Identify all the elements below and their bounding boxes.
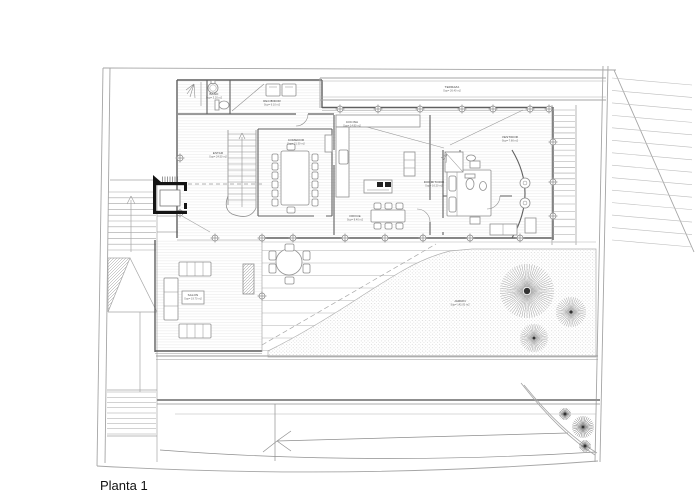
label-vestidor: VESTIDOR <box>502 135 519 139</box>
svg-text:Sup= 3.20 m2: Sup= 3.20 m2 <box>206 96 223 100</box>
right-exterior-stairs <box>552 105 576 245</box>
svg-text:Sup= 8.40 m2: Sup= 8.40 m2 <box>347 218 364 222</box>
hillside-hatch <box>612 78 692 247</box>
svg-text:Sup= 24.50 m2: Sup= 24.50 m2 <box>209 155 227 159</box>
label-jardin: JARDIN <box>454 299 465 303</box>
label-comedor: COMEDOR <box>288 138 305 142</box>
tree-corner-1 <box>559 408 571 420</box>
label-office: OFFICE <box>349 214 361 218</box>
label-bano: BAÑO <box>210 91 219 96</box>
label-terraza: TERRAZA <box>445 85 460 89</box>
svg-text:Sup= 19.70 m2: Sup= 19.70 m2 <box>184 297 202 301</box>
svg-text:Sup= 7.60 m2: Sup= 7.60 m2 <box>502 139 519 143</box>
label-estar: ESTAR <box>213 151 224 155</box>
floor-plan-drawing: BAÑO Sup= 3.20 m2 RECIBIDOR Sup= 6.10 m2… <box>0 0 700 500</box>
label-dormitorio: DORMITORIO <box>424 180 445 184</box>
svg-text:Sup= 16.20 m2: Sup= 16.20 m2 <box>425 184 443 188</box>
rear-terrace-strip <box>320 78 606 108</box>
label-cocina: COCINA <box>346 120 358 124</box>
right-stairs-treads-b <box>553 204 575 242</box>
label-salon: SALON <box>188 293 199 297</box>
label-recibidor: RECIBIDOR <box>263 99 281 103</box>
svg-text:Sup= 142.00 m2: Sup= 142.00 m2 <box>450 303 470 307</box>
left-stairs-treads-upper <box>108 192 156 250</box>
svg-text:Sup= 14.80 m2: Sup= 14.80 m2 <box>343 124 361 128</box>
svg-text:Sup= 6.10 m2: Sup= 6.10 m2 <box>264 103 281 107</box>
tree-corner-2 <box>572 416 594 438</box>
svg-text:Sup= 21.30 m2: Sup= 21.30 m2 <box>287 142 305 146</box>
svg-text:Sup= 26.40 m2: Sup= 26.40 m2 <box>443 89 461 93</box>
tree-large <box>500 264 554 318</box>
right-stairs-treads-a <box>553 110 575 196</box>
left-stairs-treads-lower <box>107 392 156 434</box>
tree-small <box>520 324 548 352</box>
floor-plan-canvas: BAÑO Sup= 3.20 m2 RECIBIDOR Sup= 6.10 m2… <box>0 0 700 500</box>
tree-corner-3 <box>579 440 591 452</box>
driveway <box>157 383 600 461</box>
drawing-title: Planta 1 <box>100 478 148 493</box>
tree-medium <box>556 297 586 327</box>
